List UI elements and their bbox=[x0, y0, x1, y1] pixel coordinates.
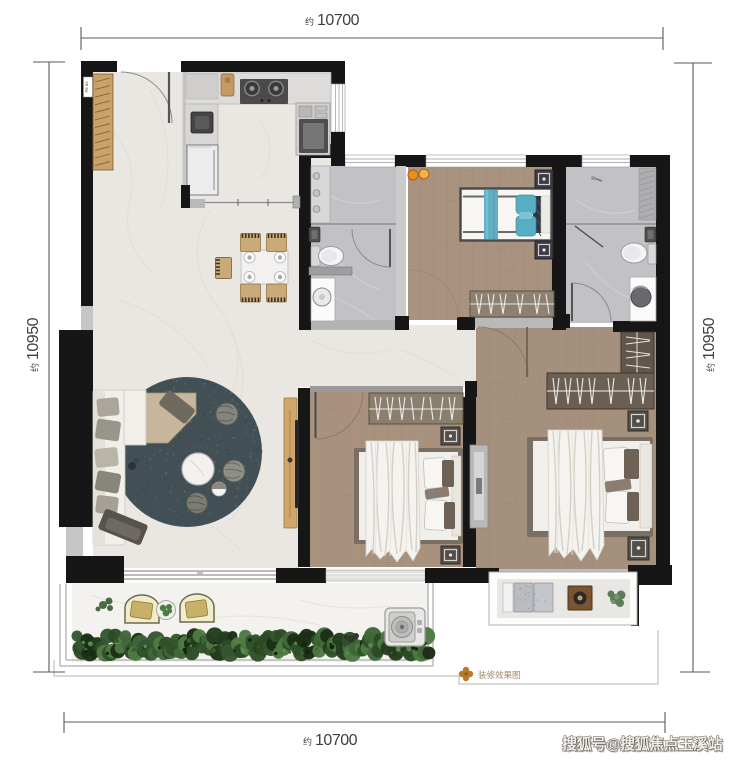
svg-text:约10700: 约10700 bbox=[305, 12, 360, 29]
svg-text:PE 80: PE 80 bbox=[84, 81, 89, 93]
svg-text:约10950: 约10950 bbox=[25, 317, 42, 372]
svg-text:搜狐号@搜狐焦点玉溪站: 搜狐号@搜狐焦点玉溪站 bbox=[562, 735, 723, 753]
svg-text:约10700: 约10700 bbox=[303, 732, 358, 749]
svg-text:约10950: 约10950 bbox=[701, 317, 718, 372]
svg-text:装修效果图: 装修效果图 bbox=[478, 670, 521, 680]
